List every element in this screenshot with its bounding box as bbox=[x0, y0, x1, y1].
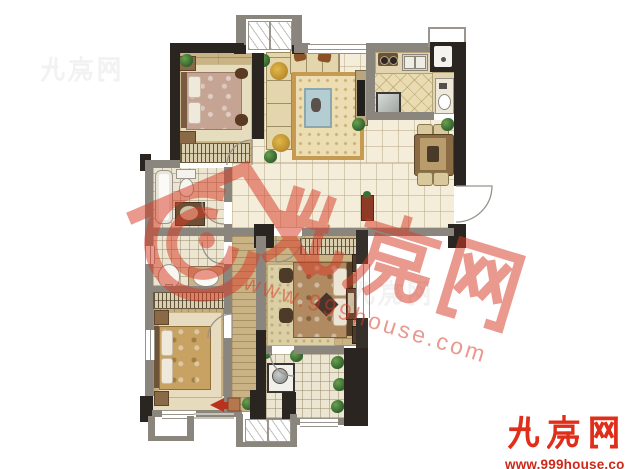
bedroom2-window bbox=[145, 330, 155, 360]
plant-icon bbox=[331, 400, 344, 413]
entry-cabinet-plant bbox=[363, 191, 371, 198]
threshold-lines bbox=[194, 413, 234, 415]
bedroom2-pillow bbox=[161, 358, 173, 384]
kitchen-bottom-wall bbox=[366, 112, 434, 120]
threshold-lines bbox=[194, 417, 234, 419]
bedroom2-pillow bbox=[161, 330, 173, 356]
plant-icon bbox=[180, 54, 193, 67]
shaft-nub bbox=[250, 390, 266, 422]
plant-icon bbox=[264, 150, 277, 163]
bedroom3-dresser-mirror bbox=[348, 293, 354, 313]
bathroom-window bbox=[145, 246, 155, 264]
master-bedroom-left-wall bbox=[170, 43, 180, 165]
corridor-floor bbox=[232, 236, 256, 412]
floor-plan-image: www.999house.com www.999house.com bbox=[0, 0, 625, 469]
top-shaft-panel bbox=[248, 21, 270, 50]
brand-logo-glyphs bbox=[505, 413, 623, 451]
bedroom2-right-wall bbox=[224, 338, 232, 412]
hallway-wall bbox=[302, 228, 454, 236]
bedroom3-wardrobe bbox=[300, 238, 360, 255]
bedroom-door-threshold bbox=[252, 139, 264, 163]
brand-logo: www.999house.com bbox=[505, 413, 623, 469]
kitchen-sink-bowl bbox=[415, 56, 426, 69]
balcony-wall bbox=[187, 416, 194, 441]
plant-icon bbox=[441, 118, 454, 131]
sofa-ottoman bbox=[272, 134, 290, 152]
dining-chair bbox=[433, 172, 449, 186]
bedroom3-pillow bbox=[333, 268, 347, 296]
master-bedroom-chair bbox=[235, 68, 248, 79]
right-wall bbox=[454, 70, 466, 186]
sofa-ottoman bbox=[270, 62, 288, 80]
master-bed-pillow bbox=[188, 102, 201, 124]
dining-chair bbox=[417, 172, 433, 186]
washing-machine-drum bbox=[272, 368, 288, 384]
bedroom2-nightstand bbox=[154, 391, 169, 406]
master-bedroom-right-wall bbox=[252, 53, 264, 139]
bedroom2-nightstand bbox=[154, 310, 169, 325]
toilet-bowl-icon bbox=[179, 178, 194, 197]
counter-basin bbox=[438, 94, 451, 110]
vanity-basin bbox=[180, 206, 198, 220]
hallway-wall bbox=[230, 228, 254, 236]
left-wall bbox=[145, 162, 153, 292]
bathroom3-window bbox=[300, 418, 338, 427]
bedroom2-wardrobe bbox=[153, 292, 225, 309]
kitchen-divider-wall bbox=[366, 52, 375, 112]
bedroom3-window bbox=[356, 264, 370, 318]
bottom-shaft-panel bbox=[245, 419, 268, 442]
bedroom3-stool bbox=[279, 308, 293, 323]
plant-icon bbox=[331, 356, 344, 369]
top-shaft-wall bbox=[236, 15, 302, 19]
bathroom-bedroom2-divider bbox=[152, 286, 226, 292]
counter-handle bbox=[439, 83, 447, 89]
master-bedroom-top-wall bbox=[170, 43, 244, 53]
bathrooms-right-wall bbox=[224, 264, 232, 314]
kitchen-corner-dot bbox=[441, 57, 446, 62]
bedroom3-stool bbox=[279, 268, 293, 283]
bottom-shaft-panel bbox=[268, 419, 291, 442]
cooktop-burner bbox=[389, 56, 398, 65]
bathrooms-right-wall bbox=[224, 167, 232, 202]
bathtub-icon bbox=[155, 170, 173, 224]
master-bed-headboard bbox=[181, 72, 187, 128]
plant-icon bbox=[352, 118, 365, 131]
coffee-table-decor bbox=[311, 98, 321, 112]
kitchen-top-wall bbox=[366, 43, 432, 52]
master-wardrobe bbox=[180, 143, 250, 163]
cooktop-burner bbox=[380, 56, 389, 65]
top-shaft-panel bbox=[270, 21, 292, 50]
bottom-shaft-wall bbox=[236, 442, 297, 447]
bedroom3-bath-divider bbox=[266, 346, 272, 354]
dining-centerpiece bbox=[427, 146, 439, 162]
master-bedroom-chair bbox=[235, 114, 248, 126]
living-room-window bbox=[308, 44, 368, 54]
bedroom3-bath-divider bbox=[294, 346, 344, 354]
bathroom-divider-wall bbox=[152, 228, 226, 236]
kitchen-sink-bowl bbox=[404, 56, 415, 69]
entry-cabinet bbox=[361, 195, 374, 221]
bathrooms-right-wall bbox=[224, 224, 232, 242]
entry-door-arc bbox=[456, 186, 492, 222]
basin-oval bbox=[193, 269, 219, 287]
tv-screen bbox=[357, 80, 365, 116]
bottom-right-wall-mass bbox=[344, 348, 368, 426]
brand-logo-url: www.999house.com bbox=[505, 457, 623, 469]
master-bed-pillow bbox=[188, 76, 201, 98]
